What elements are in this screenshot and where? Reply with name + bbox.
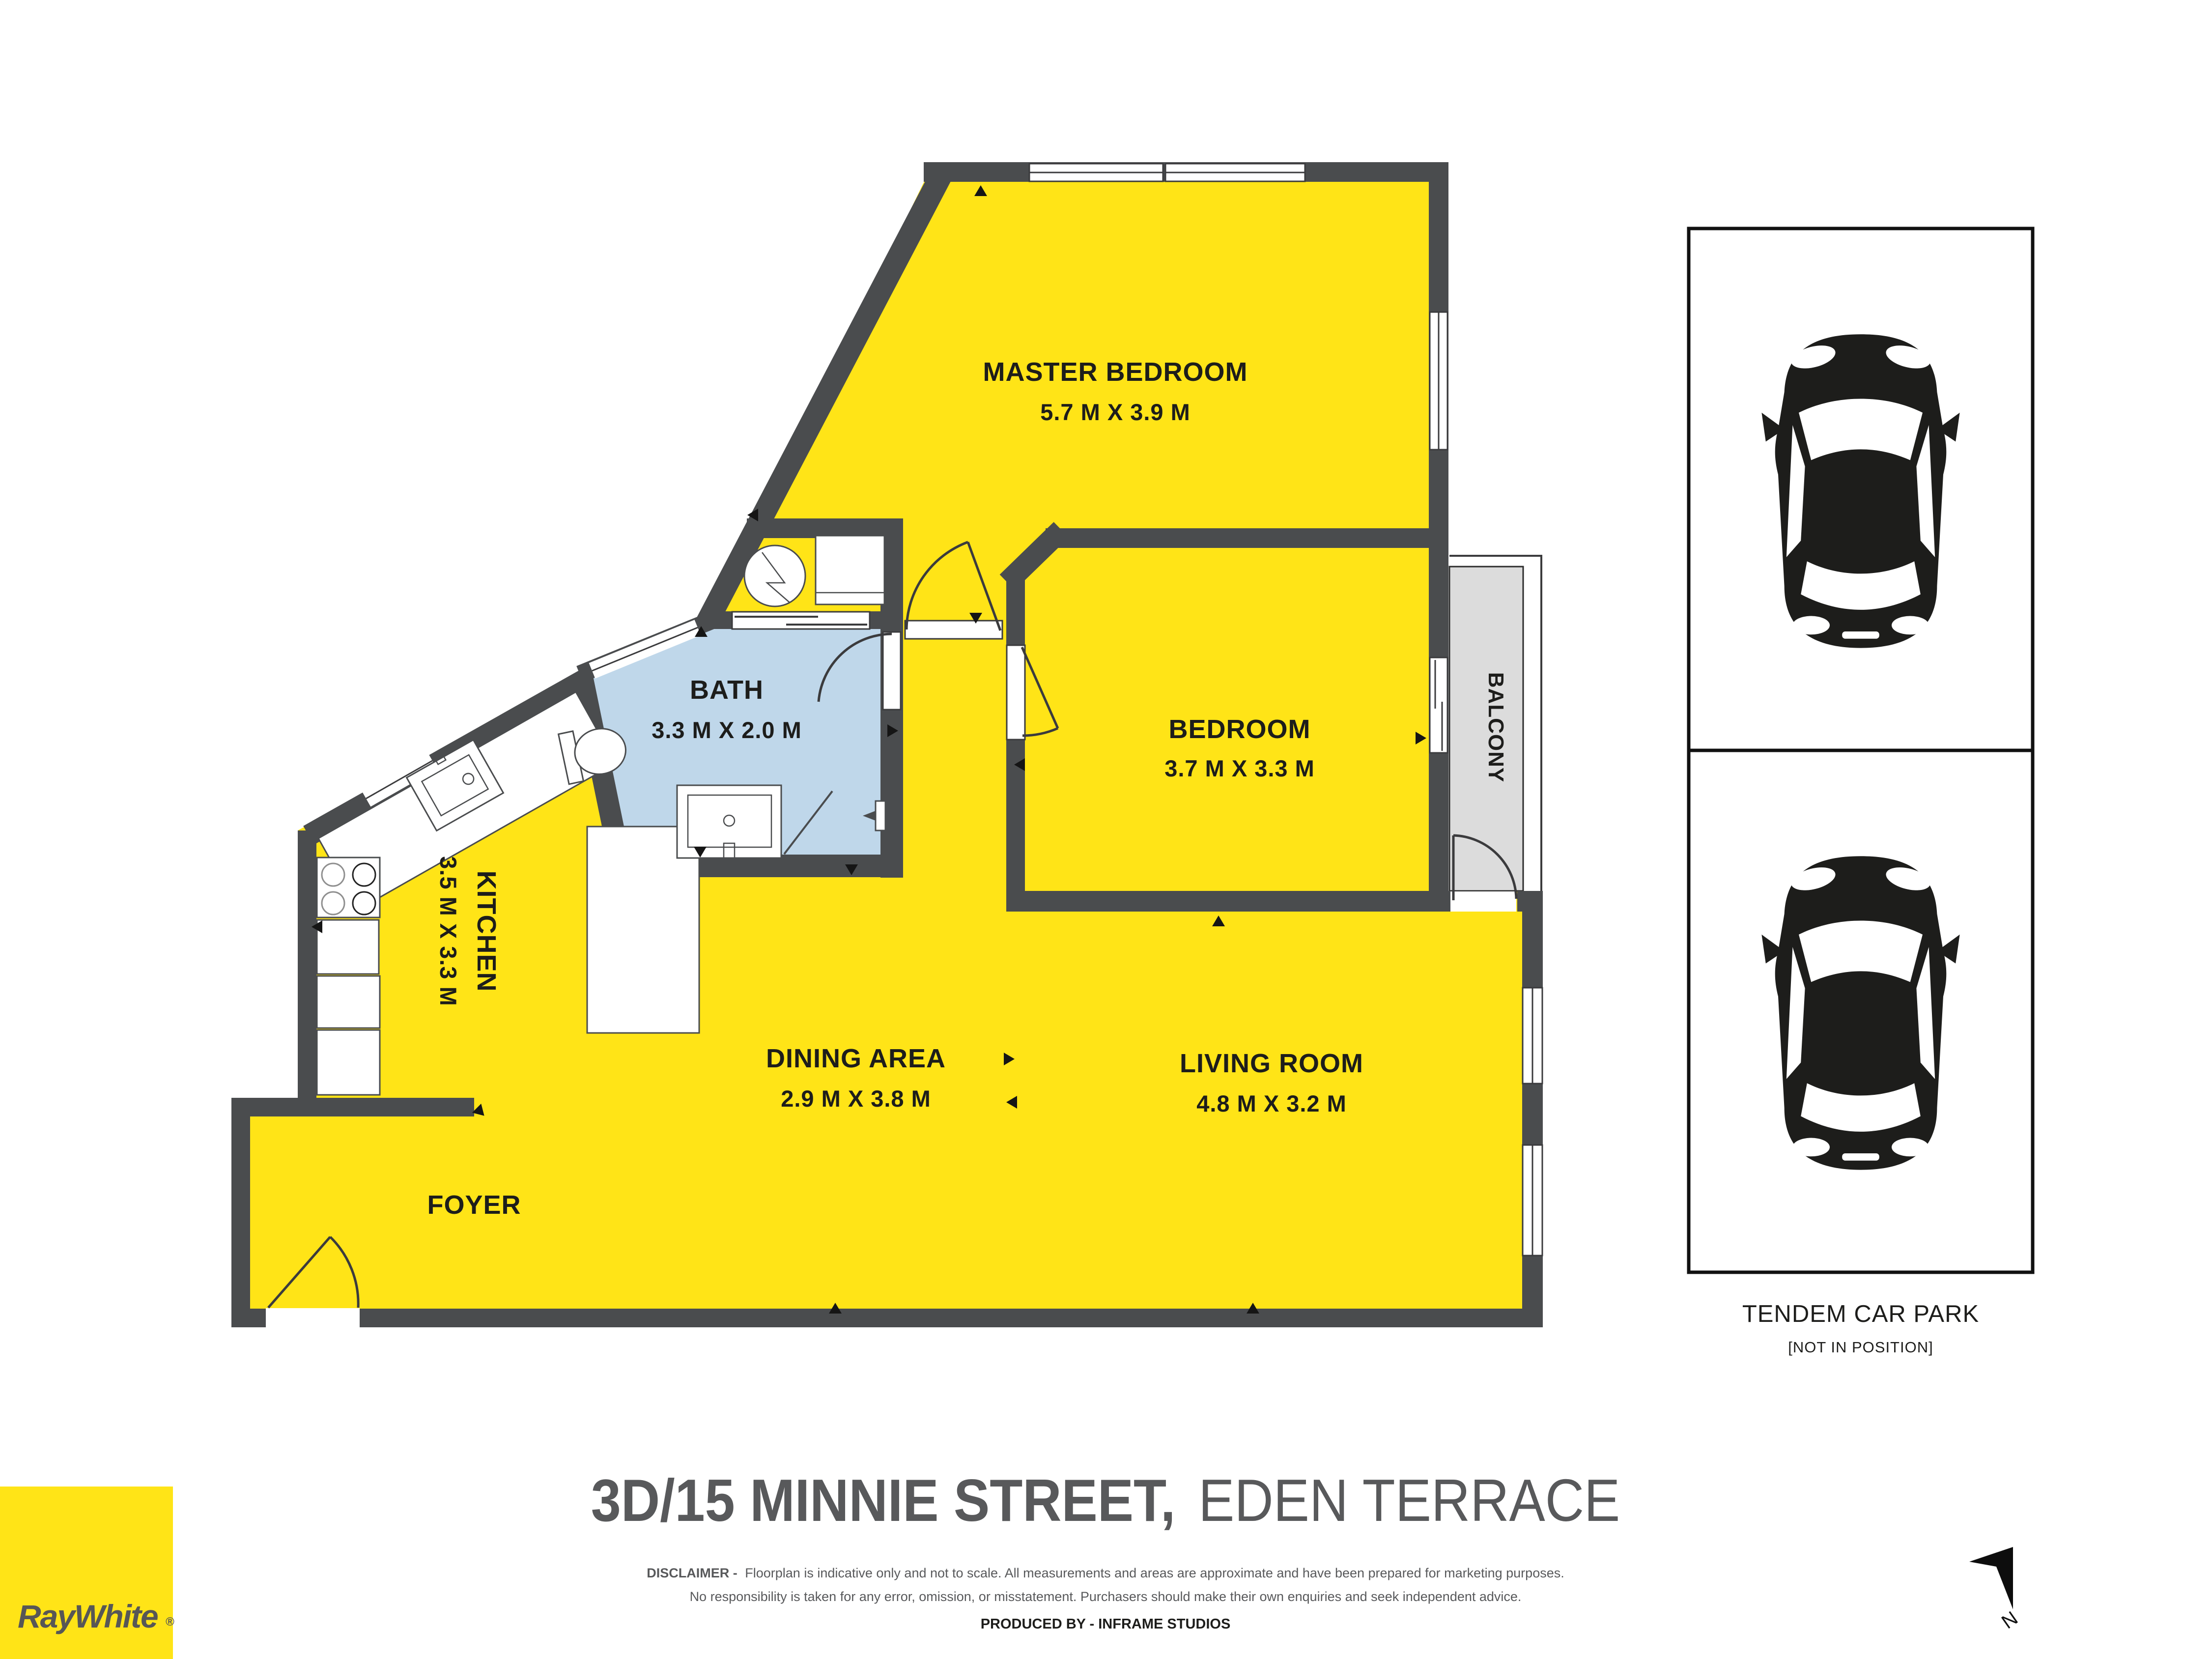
address-bold: 3D/15 MINNIE STREET, — [591, 1467, 1176, 1534]
room-dims: 3.5 M X 3.3 M — [435, 856, 461, 1006]
kitchen-cabinet — [317, 1030, 380, 1095]
room-label-balcony: BALCONY — [1484, 672, 1508, 783]
north-compass: N — [1969, 1547, 2022, 1633]
floorplan-page: MASTER BEDROOM 5.7 M X 3.9 M BEDROOM 3.7… — [0, 0, 2212, 1659]
bath-sliding-door — [732, 612, 870, 629]
logo-brand-text: RayWhite — [18, 1598, 158, 1634]
room-dims: 3.3 M X 2.0 M — [652, 717, 802, 743]
disclaimer-label: DISCLAIMER - — [647, 1566, 737, 1580]
address-title: 3D/15 MINNIE STREET, EDEN TERRACE — [591, 1467, 1620, 1534]
vanity — [677, 785, 781, 858]
room-name: LIVING ROOM — [1180, 1049, 1363, 1078]
address-light: EDEN TERRACE — [1198, 1467, 1620, 1534]
produced-by: PRODUCED BY - INFRAME STUDIOS — [981, 1616, 1231, 1632]
washing-machine — [816, 536, 884, 604]
room-dims: 5.7 M X 3.9 M — [1040, 399, 1191, 425]
window-master-top-1 — [1029, 164, 1163, 181]
car-icon — [1761, 334, 1959, 648]
raywhite-logo: RayWhite ® — [0, 1487, 174, 1659]
pantry-cabinet — [317, 976, 380, 1028]
room-name: FOYER — [427, 1190, 521, 1220]
window-bedroom-slider — [1430, 658, 1447, 753]
footer: 3D/15 MINNIE STREET, EDEN TERRACE DISCLA… — [0, 1467, 2022, 1659]
room-name: MASTER BEDROOM — [983, 357, 1248, 387]
car-icon — [1761, 856, 1959, 1170]
room-dims: 3.7 M X 3.3 M — [1164, 755, 1315, 781]
north-arrow-icon — [1969, 1547, 2013, 1609]
carpark-panel: TENDEM CAR PARK [NOT IN POSITION] — [1689, 229, 2033, 1356]
carpark-title: TENDEM CAR PARK — [1742, 1301, 1979, 1327]
room-name: BATH — [690, 675, 764, 705]
logo-wordmark: RayWhite ® — [18, 1598, 174, 1634]
carpark-subtitle: [NOT IN POSITION] — [1788, 1339, 1933, 1356]
window-master-right — [1430, 312, 1447, 450]
stove — [317, 858, 380, 917]
hot-water-cylinder — [744, 545, 805, 606]
window-living-right-2 — [1523, 1145, 1542, 1256]
disclaimer-line-1: DISCLAIMER - Floorplan is indicative onl… — [647, 1566, 1564, 1580]
registered-mark-icon: ® — [166, 1615, 174, 1629]
north-label: N — [1998, 1607, 2022, 1633]
room-name: BEDROOM — [1169, 715, 1311, 744]
room-name: KITCHEN — [472, 871, 501, 992]
window-living-right-1 — [1523, 988, 1542, 1084]
disclaimer-text: Floorplan is indicative only and not to … — [745, 1566, 1564, 1580]
room-name: BALCONY — [1484, 672, 1508, 783]
svg-text:3D/15 MINNIE STREET, E: 3D/15 MINNIE STREET, EDEN TERRACE — [591, 1467, 1620, 1534]
fridge — [317, 920, 379, 974]
floorplan-canvas: MASTER BEDROOM 5.7 M X 3.9 M BEDROOM 3.7… — [0, 0, 2212, 1659]
room-name: DINING AREA — [766, 1044, 946, 1073]
disclaimer-line-2: No responsibility is taken for any error… — [690, 1589, 1522, 1604]
room-label-foyer: FOYER — [427, 1190, 521, 1220]
room-dims: 4.8 M X 3.2 M — [1196, 1090, 1347, 1116]
room-dims: 2.9 M X 3.8 M — [781, 1086, 931, 1112]
window-master-top-2 — [1165, 164, 1305, 181]
